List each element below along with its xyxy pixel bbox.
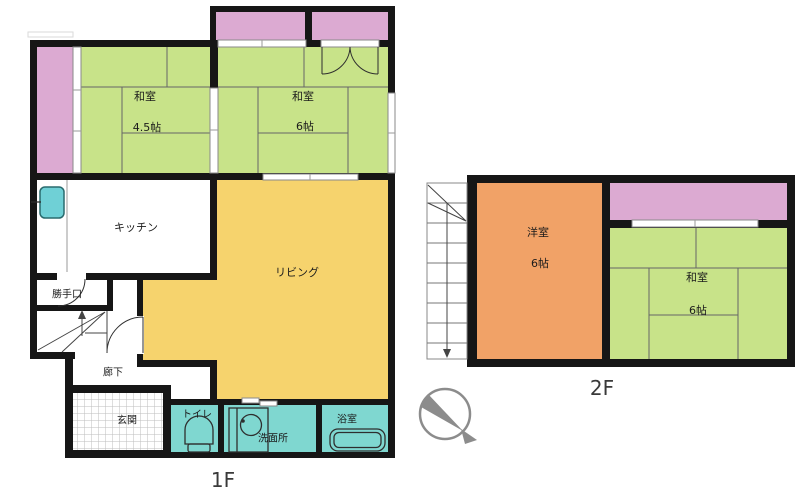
rooms-2f [477,183,787,359]
washbasin-drain-dot [241,419,245,423]
label-washitsu6-1f-name: 和室 [292,88,314,104]
room-washroom [224,405,316,452]
label-entrance: 玄関 [117,412,137,427]
label-toilet: トイレ [182,406,212,421]
balcony-2f [610,183,787,220]
label-washitsu6-2f-name: 和室 [686,269,708,285]
label-kitchen: キッチン [114,219,158,235]
label-floor-1f: 1F [211,468,235,492]
room-washitsu45-1f [81,47,210,173]
label-backdoor: 勝手口 [52,286,82,301]
label-washitsu6-1f-size: 6帖 [296,118,314,134]
room-western-2f [477,183,602,359]
label-washitsu45-size: 4.5帖 [133,119,162,135]
veranda-strip [37,47,73,173]
label-washitsu45-name: 和室 [134,88,156,104]
porch-right [312,12,389,40]
kitchen-sink-icon [40,187,64,218]
label-living: リビング [275,264,319,280]
label-western-size: 6帖 [531,255,549,271]
room-washitsu6-1f [218,47,388,173]
windows-2f [632,220,758,227]
label-washitsu6-2f-size: 6帖 [689,302,707,318]
label-bathroom: 浴室 [337,411,357,426]
label-washroom: 洗面所 [258,430,288,445]
backdoor-opening [57,272,86,281]
label-western-name: 洋室 [527,224,549,240]
floor-plan-canvas: 和室 4.5帖 和室 6帖 キッチン リビング 勝手口 廊下 玄関 トイレ 洗面… [0,0,800,503]
porch-left [216,12,305,40]
eave-line [28,32,73,37]
label-floor-2f: 2F [590,376,614,400]
floor-plan-drawing [0,0,800,503]
stairs-2f [427,183,467,359]
room-washitsu6-2f [610,228,787,359]
north-arrow-compass-icon [420,389,477,444]
label-hallway: 廊下 [103,364,123,379]
